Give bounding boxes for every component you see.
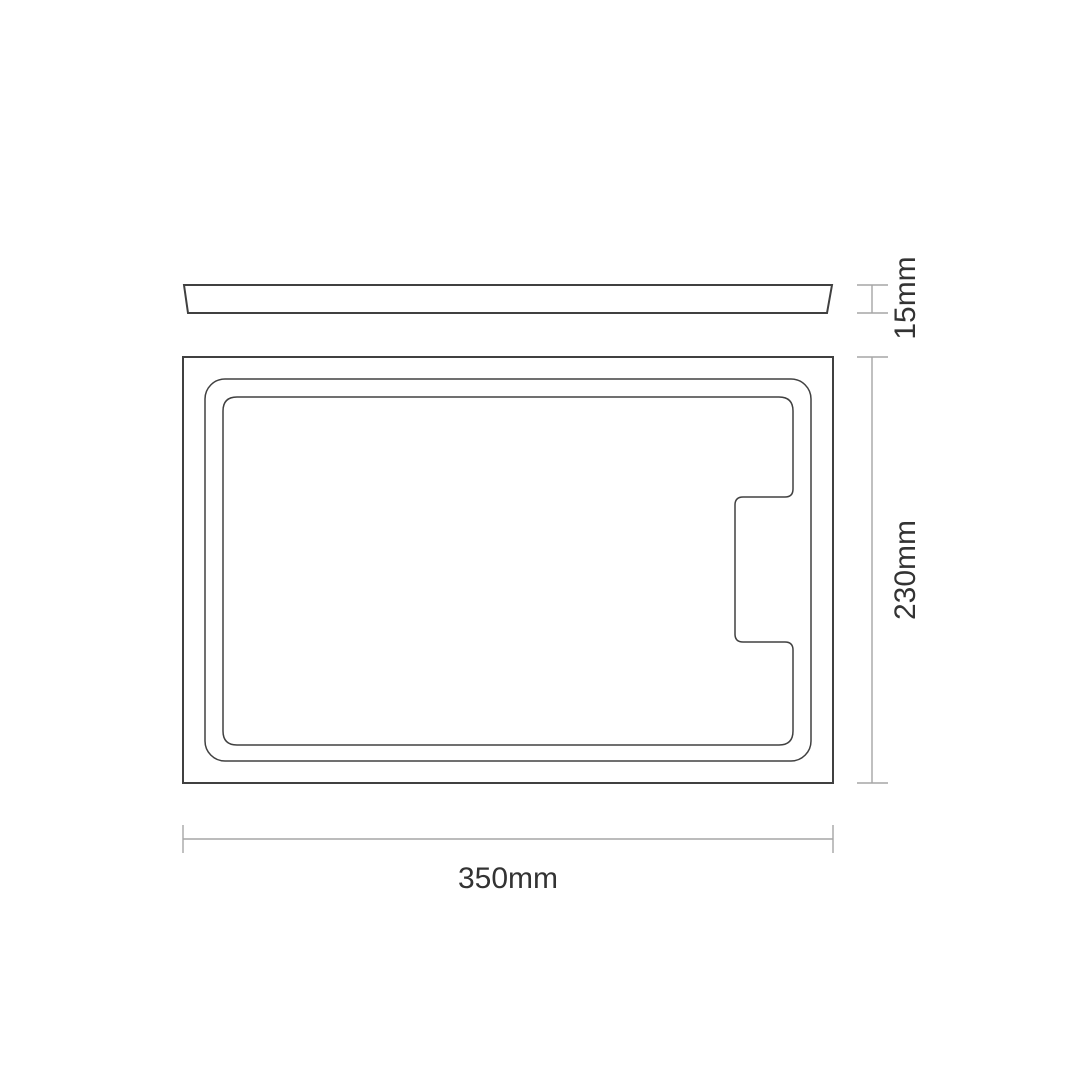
technical-drawing-page: 15mm 230mm 350mm [0, 0, 1080, 1080]
depth-dimension-label: 230mm [889, 520, 923, 620]
width-dimension-line [183, 825, 833, 853]
thickness-dimension-line [857, 285, 888, 313]
juice-groove-inner-line-with-notch [223, 397, 793, 745]
width-dimension-label: 350mm [458, 862, 558, 896]
depth-dimension-line [857, 357, 888, 783]
thickness-dimension-label: 15mm [889, 256, 923, 339]
side-view-outline [184, 285, 832, 313]
juice-groove-outer-line [205, 379, 811, 761]
